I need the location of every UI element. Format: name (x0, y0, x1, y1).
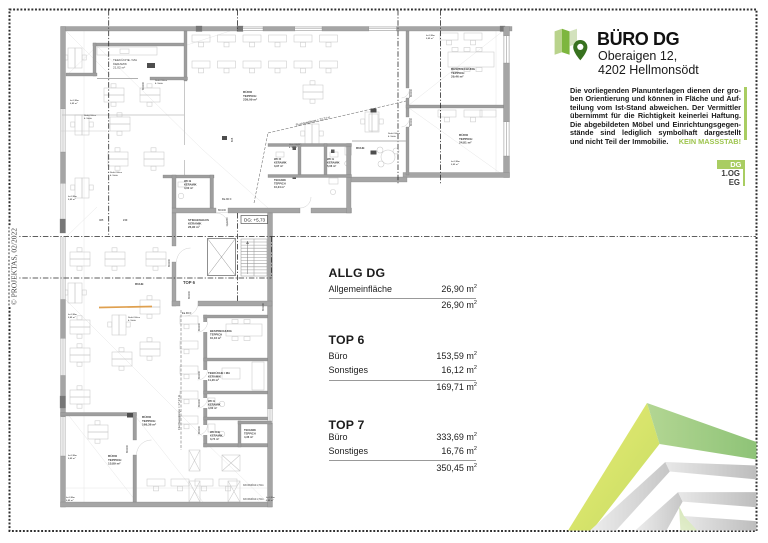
svg-text:RUHE: RUHE (135, 282, 144, 286)
svg-text:h=1,38m0,95 m²: h=1,38m0,95 m² (68, 314, 77, 319)
svg-text:h=1,38m0,95 m²: h=1,38m0,95 m² (451, 161, 460, 166)
svg-text:E​a 30 C: E​a 30 C (182, 311, 191, 315)
svg-text:h=1,38m0,95 m²: h=1,38m0,95 m² (70, 100, 79, 105)
svg-text:RAUMHÖHE 2,50m: RAUMHÖHE 2,50m (243, 484, 264, 487)
svg-text:BÜROTEPPICH169,36 m²: BÜROTEPPICH169,36 m² (142, 415, 156, 427)
svg-text:TOP 6: TOP 6 (183, 280, 196, 285)
svg-text:D​a 30 C: D​a 30 C (222, 197, 232, 201)
svg-text:STIEGENHAUSKERAMIK26,90 m²: STIEGENHAUSKERAMIK26,90 m² (188, 218, 209, 229)
svg-text:Fluchtweglänge = 24,37 m: Fluchtweglänge = 24,37 m (295, 115, 331, 127)
svg-text:Stahl-Gläse4. Stärk: Stahl-Gläse4. Stärk (110, 171, 123, 177)
svg-text:h=1,38m0,95 m²: h=1,38m0,95 m² (426, 35, 435, 40)
svg-text:Stahl-Gläse4. Stärk: Stahl-Gläse4. Stärk (128, 316, 141, 322)
svg-text:WC BKERAMIK4,00 m²: WC BKERAMIK4,00 m² (184, 179, 197, 190)
svg-text:80/200: 80/200 (261, 302, 265, 310)
svg-text:80/200: 80/200 (409, 88, 413, 96)
svg-text:BESPRECHUNGTEPPICH29,46 m²: BESPRECHUNGTEPPICH29,46 m² (451, 67, 476, 79)
svg-text:RUHE: RUHE (356, 146, 365, 150)
svg-text:465: 465 (99, 218, 104, 222)
svg-text:WC DKERAMIK3,97 m²: WC DKERAMIK3,97 m² (274, 157, 287, 168)
svg-text:h=1,38m0,95 m²: h=1,38m0,95 m² (266, 497, 275, 502)
svg-text:TEEKÜCHE / MAKERAMIK11,20 m²: TEEKÜCHE / MAKERAMIK11,20 m² (208, 370, 230, 382)
svg-text:h=1,38m0,95 m²: h=1,38m0,95 m² (68, 455, 77, 460)
svg-text:80/200: 80/200 (197, 398, 201, 406)
svg-text:TECHNIKTEPPICH4,36 m²: TECHNIKTEPPICH4,36 m² (244, 428, 256, 439)
svg-text:80/200: 80/200 (197, 322, 201, 330)
svg-text:RAUMHÖHE 2,50m: RAUMHÖHE 2,50m (243, 498, 264, 501)
svg-text:Stahl-Gläse4. Stärk: Stahl-Gläse4. Stärk (84, 114, 97, 120)
svg-text:BÜROTEPPICH239,09 m²: BÜROTEPPICH239,09 m² (243, 90, 257, 102)
svg-text:80/200: 80/200 (218, 208, 226, 212)
svg-text:80/200: 80/200 (187, 290, 191, 298)
svg-text:TEEKÜCHE / MAKERAMIK21,02 m²: TEEKÜCHE / MAKERAMIK21,02 m² (113, 58, 138, 70)
svg-text:80/200: 80/200 (409, 117, 413, 125)
svg-text:80/200: 80/200 (197, 370, 201, 378)
svg-text:240: 240 (123, 218, 128, 222)
svg-text:WC HKERAMIK4,60 m²: WC HKERAMIK4,60 m² (208, 399, 221, 410)
svg-text:h=1,38m0,95 m²: h=1,38m0,95 m² (66, 497, 75, 502)
svg-text:80/200: 80/200 (125, 444, 129, 452)
svg-text:BÜROTEPPICH24,81 m²: BÜROTEPPICH24,81 m² (459, 133, 473, 145)
svg-text:80/200: 80/200 (141, 81, 145, 89)
svg-text:80/200: 80/200 (167, 258, 171, 266)
svg-text:WC HKERAMIK5,06 m²: WC HKERAMIK5,06 m² (327, 157, 340, 168)
svg-text:608: 608 (230, 137, 234, 142)
svg-text:TECHNIKTEPPICH10,24 m²: TECHNIKTEPPICH10,24 m² (274, 178, 286, 189)
svg-text:h=1,38m0,95 m²: h=1,38m0,95 m² (68, 196, 77, 201)
svg-text:Fluchtweglänge = 17,37 m: Fluchtweglänge = 17,37 m (177, 394, 181, 430)
svg-text:Stahl-Gläse4. Stärk: Stahl-Gläse4. Stärk (388, 132, 401, 138)
svg-text:DG: +5,73: DG: +5,73 (244, 218, 266, 223)
svg-text:112/200: 112/200 (225, 217, 229, 227)
svg-text:80/200: 80/200 (197, 425, 201, 433)
svg-text:Stahl-Gläse4. Stärk: Stahl-Gläse4. Stärk (155, 79, 168, 85)
svg-text:BESPRECHUNGTEPPICH10,16 m²: BESPRECHUNGTEPPICH10,16 m² (210, 329, 232, 340)
svg-text:BÜROTEPPICH15,89 m²: BÜROTEPPICH15,89 m² (108, 454, 122, 466)
